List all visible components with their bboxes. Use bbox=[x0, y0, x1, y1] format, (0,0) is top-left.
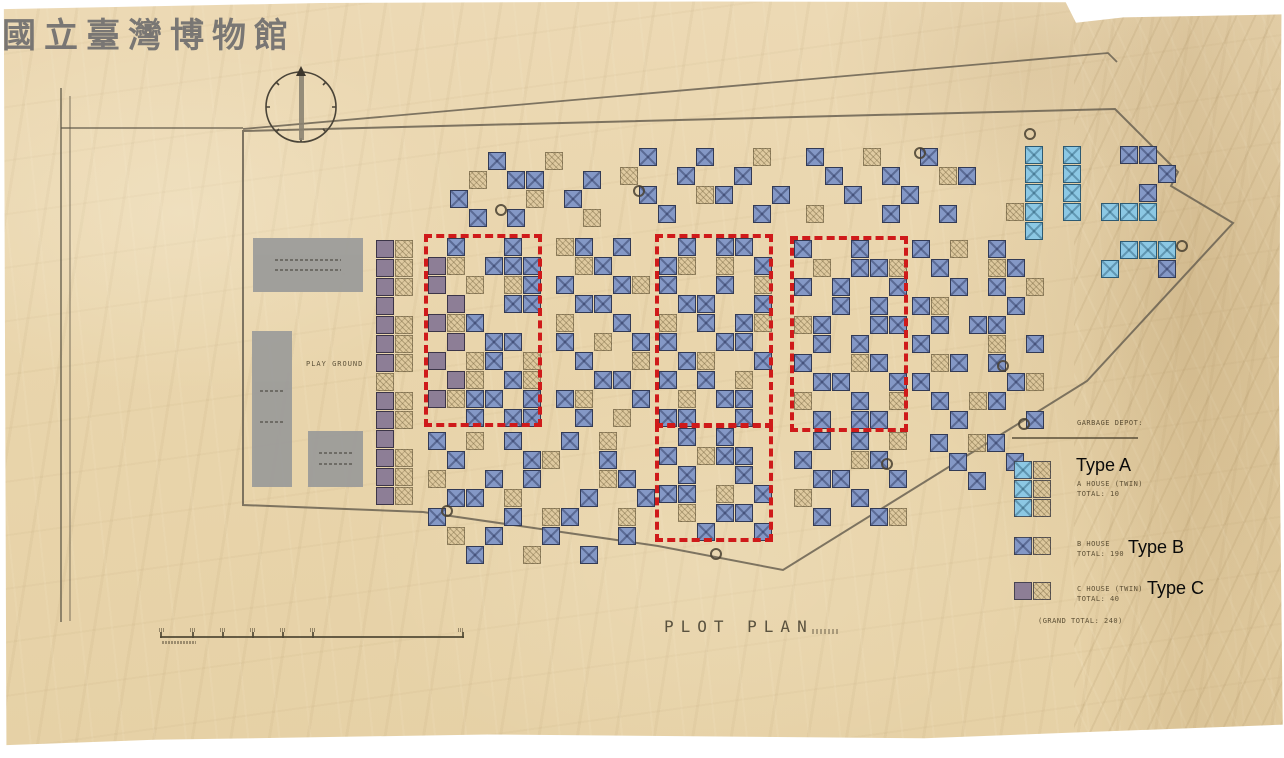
house-cell-type-B bbox=[466, 489, 484, 507]
house-cell-type-B bbox=[523, 451, 541, 469]
highlight-box bbox=[655, 424, 773, 542]
house-cell-type-B bbox=[523, 470, 541, 488]
house-cell-type-B bbox=[613, 238, 631, 256]
house-cell-type-B bbox=[912, 335, 930, 353]
house-cell-type-B bbox=[575, 295, 593, 313]
house-cell-type-B bbox=[485, 527, 503, 545]
vacant-lot-cell bbox=[469, 171, 487, 189]
house-cell-type-C bbox=[376, 278, 394, 296]
highlight-box bbox=[655, 234, 773, 427]
house-cell-type-B bbox=[1026, 335, 1044, 353]
vacant-lot-cell bbox=[395, 411, 413, 429]
house-cell-type-A bbox=[1139, 241, 1157, 259]
house-cell-type-C bbox=[376, 335, 394, 353]
house-cell-type-B bbox=[987, 434, 1005, 452]
house-cell-type-B bbox=[580, 489, 598, 507]
house-cell-type-C bbox=[376, 240, 394, 258]
house-cell-type-B bbox=[851, 432, 869, 450]
house-cell-type-B bbox=[988, 240, 1006, 258]
scanned-plot-plan-document: { "watermark": "國立臺灣博物館", "title": { "te… bbox=[0, 0, 1284, 758]
house-cell-type-B bbox=[450, 190, 468, 208]
vacant-lot-cell bbox=[556, 238, 574, 256]
house-cell-type-B bbox=[813, 470, 831, 488]
vacant-lot-cell bbox=[575, 390, 593, 408]
house-cell-type-A bbox=[1025, 165, 1043, 183]
house-cell-type-C bbox=[376, 411, 394, 429]
vacant-lot-cell bbox=[889, 432, 907, 450]
house-cell-type-B bbox=[466, 546, 484, 564]
house-cell-type-C bbox=[376, 316, 394, 334]
garbage-depot-marker bbox=[633, 185, 645, 197]
house-cell-type-B bbox=[1158, 260, 1176, 278]
vacant-lot-cell bbox=[950, 240, 968, 258]
vacant-lot-cell bbox=[575, 257, 593, 275]
house-cell-type-A bbox=[1025, 184, 1043, 202]
house-cell-type-B bbox=[488, 152, 506, 170]
vacant-lot-cell bbox=[969, 392, 987, 410]
play-ground-label: PLAY GROUND bbox=[306, 360, 363, 368]
vacant-lot-cell bbox=[1006, 203, 1024, 221]
vacant-lot-cell bbox=[599, 432, 617, 450]
vacant-lot-cell bbox=[939, 167, 957, 185]
house-cell-type-A bbox=[1025, 146, 1043, 164]
house-cell-type-B bbox=[618, 470, 636, 488]
vacant-lot-cell bbox=[599, 470, 617, 488]
house-cell-type-B bbox=[469, 209, 487, 227]
house-cell-type-B bbox=[618, 527, 636, 545]
house-cell-type-B bbox=[507, 171, 525, 189]
vacant-lot-cell bbox=[395, 468, 413, 486]
house-cell-type-A bbox=[1101, 203, 1119, 221]
house-cell-type-B bbox=[753, 205, 771, 223]
outer-property-line bbox=[243, 53, 1117, 129]
legend-b-house-label: B HOUSE bbox=[1077, 540, 1110, 548]
house-cell-type-B bbox=[813, 432, 831, 450]
house-cell-type-B bbox=[613, 371, 631, 389]
house-cell-type-B bbox=[939, 205, 957, 223]
public-building bbox=[253, 238, 363, 292]
scale-caption-smudge bbox=[162, 641, 196, 644]
vacant-lot-cell bbox=[968, 434, 986, 452]
house-cell-type-B bbox=[950, 278, 968, 296]
house-cell-type-B bbox=[912, 373, 930, 391]
highlight-box bbox=[424, 234, 542, 427]
plot-plan-title: PLOT PLAN bbox=[664, 617, 814, 636]
house-cell-type-B bbox=[806, 148, 824, 166]
house-cell-type-B bbox=[575, 352, 593, 370]
house-cell-type-B bbox=[950, 354, 968, 372]
vacant-lot-cell bbox=[542, 451, 560, 469]
house-cell-type-C bbox=[376, 430, 394, 448]
house-cell-type-B bbox=[526, 171, 544, 189]
vacant-lot-cell bbox=[504, 489, 522, 507]
scale-bar bbox=[160, 632, 464, 646]
house-cell-type-B bbox=[912, 297, 930, 315]
house-cell-type-B bbox=[580, 546, 598, 564]
house-cell-type-B bbox=[447, 489, 465, 507]
vacant-lot-cell bbox=[632, 352, 650, 370]
vacant-lot-cell bbox=[806, 205, 824, 223]
vacant-lot-cell bbox=[988, 335, 1006, 353]
house-cell-type-B bbox=[599, 451, 617, 469]
garbage-depot-marker bbox=[1024, 128, 1036, 140]
house-cell-type-B bbox=[639, 148, 657, 166]
house-cell-type-B bbox=[594, 295, 612, 313]
house-cell-type-B bbox=[988, 316, 1006, 334]
public-building bbox=[308, 431, 363, 487]
vacant-lot-cell bbox=[466, 432, 484, 450]
vacant-lot-cell bbox=[395, 392, 413, 410]
house-cell-type-B bbox=[988, 278, 1006, 296]
house-cell-type-B bbox=[1139, 146, 1157, 164]
house-cell-type-C bbox=[376, 468, 394, 486]
type-a-overlay-label: Type A bbox=[1076, 455, 1131, 476]
house-cell-type-A bbox=[1025, 203, 1043, 221]
vacant-lot-cell bbox=[428, 470, 446, 488]
house-cell-type-C bbox=[376, 297, 394, 315]
house-cell-type-B bbox=[613, 276, 631, 294]
vacant-lot-cell bbox=[863, 148, 881, 166]
vacant-lot-cell bbox=[447, 527, 465, 545]
legend-garbage-depot-label: GARBAGE DEPOT: bbox=[1077, 419, 1143, 427]
type-c-overlay-label: Type C bbox=[1147, 578, 1204, 599]
house-cell-type-B bbox=[677, 167, 695, 185]
house-cell-type-A bbox=[1063, 203, 1081, 221]
house-cell-type-B bbox=[637, 489, 655, 507]
house-cell-type-B bbox=[485, 470, 503, 488]
house-cell-type-B bbox=[969, 316, 987, 334]
house-cell-type-B bbox=[556, 390, 574, 408]
house-cell-type-B bbox=[507, 209, 525, 227]
house-cell-type-B bbox=[447, 451, 465, 469]
house-cell-type-B bbox=[564, 190, 582, 208]
house-cell-type-B bbox=[504, 508, 522, 526]
legend-a-house-total: TOTAL: 10 bbox=[1077, 490, 1119, 498]
house-cell-type-B bbox=[542, 527, 560, 545]
house-cell-type-B bbox=[658, 205, 676, 223]
compass-icon bbox=[266, 66, 336, 142]
vacant-lot-cell bbox=[851, 451, 869, 469]
vacant-lot-cell bbox=[395, 487, 413, 505]
vacant-lot-cell bbox=[1026, 278, 1044, 296]
vacant-lot-cell bbox=[632, 276, 650, 294]
house-cell-type-B bbox=[575, 238, 593, 256]
vacant-lot-cell bbox=[395, 316, 413, 334]
paper-sheet: PLAY GROUND PLOT PLAN GARBAGE DEPOT: bbox=[0, 0, 1284, 758]
house-cell-type-B bbox=[1158, 165, 1176, 183]
vacant-lot-cell bbox=[889, 508, 907, 526]
house-cell-type-C bbox=[376, 449, 394, 467]
house-cell-type-B bbox=[794, 451, 812, 469]
house-cell-type-B bbox=[958, 167, 976, 185]
house-cell-type-B bbox=[870, 508, 888, 526]
house-cell-type-B bbox=[772, 186, 790, 204]
vacant-lot-cell bbox=[395, 278, 413, 296]
house-cell-type-B bbox=[561, 432, 579, 450]
garbage-depot-marker bbox=[710, 548, 722, 560]
house-cell-type-A bbox=[1120, 241, 1138, 259]
vacant-lot-cell bbox=[395, 449, 413, 467]
legend-c-house-total: TOTAL: 40 bbox=[1077, 595, 1119, 603]
house-cell-type-B bbox=[813, 508, 831, 526]
vacant-lot-cell bbox=[395, 259, 413, 277]
house-cell-type-A bbox=[1063, 184, 1081, 202]
house-cell-type-B bbox=[825, 167, 843, 185]
type-b-overlay-label: Type B bbox=[1128, 537, 1184, 558]
house-cell-type-C bbox=[376, 392, 394, 410]
house-cell-type-B bbox=[1007, 297, 1025, 315]
house-cell-type-B bbox=[1007, 373, 1025, 391]
garbage-depot-marker bbox=[997, 360, 1009, 372]
vacant-lot-cell bbox=[931, 354, 949, 372]
vacant-lot-cell bbox=[931, 297, 949, 315]
vacant-lot-cell bbox=[613, 409, 631, 427]
house-cell-type-A bbox=[1158, 241, 1176, 259]
house-cell-type-B bbox=[594, 257, 612, 275]
vacant-lot-cell bbox=[395, 354, 413, 372]
house-cell-type-B bbox=[851, 489, 869, 507]
vacant-lot-cell bbox=[376, 373, 394, 391]
house-cell-type-B bbox=[912, 240, 930, 258]
house-cell-type-A bbox=[1139, 203, 1157, 221]
vacant-lot-cell bbox=[556, 314, 574, 332]
vacant-lot-cell bbox=[1026, 373, 1044, 391]
house-cell-type-B bbox=[1120, 146, 1138, 164]
house-cell-type-B bbox=[556, 276, 574, 294]
public-building bbox=[252, 331, 292, 487]
house-cell-type-B bbox=[832, 470, 850, 488]
house-cell-type-B bbox=[844, 186, 862, 204]
legend-garbage-depot-icon bbox=[1018, 418, 1030, 430]
house-cell-type-B bbox=[950, 411, 968, 429]
house-cell-type-B bbox=[575, 409, 593, 427]
vacant-lot-cell bbox=[583, 209, 601, 227]
house-cell-type-A bbox=[1063, 146, 1081, 164]
legend-divider bbox=[1012, 437, 1138, 439]
house-cell-type-B bbox=[583, 171, 601, 189]
legend-a-house-label: A HOUSE (TWIN) bbox=[1077, 480, 1143, 488]
house-cell-type-A bbox=[1101, 260, 1119, 278]
vacant-lot-cell bbox=[794, 489, 812, 507]
legend-b-house-total: TOTAL: 190 bbox=[1077, 550, 1124, 558]
garbage-depot-marker bbox=[441, 505, 453, 517]
house-cell-type-B bbox=[1007, 259, 1025, 277]
vacant-lot-cell bbox=[395, 335, 413, 353]
house-cell-type-B bbox=[949, 453, 967, 471]
vacant-lot-cell bbox=[395, 240, 413, 258]
legend-grand-total: (GRAND TOTAL: 240) bbox=[1038, 617, 1123, 625]
house-cell-type-B bbox=[931, 259, 949, 277]
vacant-lot-cell bbox=[523, 546, 541, 564]
museum-watermark: 國立臺灣博物館 bbox=[2, 8, 296, 57]
house-cell-type-B bbox=[882, 167, 900, 185]
house-cell-type-A bbox=[1025, 222, 1043, 240]
vacant-lot-cell bbox=[542, 508, 560, 526]
garbage-depot-marker bbox=[914, 147, 926, 159]
vacant-lot-cell bbox=[618, 508, 636, 526]
vacant-lot-cell bbox=[753, 148, 771, 166]
house-cell-type-B bbox=[632, 333, 650, 351]
vacant-lot-cell bbox=[594, 333, 612, 351]
house-cell-type-B bbox=[504, 432, 522, 450]
garbage-depot-marker bbox=[495, 204, 507, 216]
vacant-lot-cell bbox=[526, 190, 544, 208]
vacant-lot-cell bbox=[620, 167, 638, 185]
house-cell-type-B bbox=[931, 392, 949, 410]
house-cell-type-B bbox=[561, 508, 579, 526]
house-cell-type-B bbox=[1139, 184, 1157, 202]
garbage-depot-marker bbox=[881, 458, 893, 470]
vacant-lot-cell bbox=[696, 186, 714, 204]
house-cell-type-B bbox=[696, 148, 714, 166]
house-cell-type-C bbox=[376, 259, 394, 277]
vacant-lot-cell bbox=[988, 259, 1006, 277]
house-cell-type-B bbox=[632, 390, 650, 408]
plot-plan-scale-smudge bbox=[812, 629, 838, 634]
house-cell-type-B bbox=[901, 186, 919, 204]
house-cell-type-B bbox=[428, 432, 446, 450]
house-cell-type-B bbox=[889, 470, 907, 488]
house-cell-type-A bbox=[1120, 203, 1138, 221]
garbage-depot-marker bbox=[1176, 240, 1188, 252]
house-cell-type-B bbox=[988, 392, 1006, 410]
house-cell-type-B bbox=[968, 472, 986, 490]
legend-c-house-label: C HOUSE (TWIN) bbox=[1077, 585, 1143, 593]
house-cell-type-B bbox=[931, 316, 949, 334]
house-cell-type-B bbox=[734, 167, 752, 185]
house-cell-type-B bbox=[594, 371, 612, 389]
vacant-lot-cell bbox=[545, 152, 563, 170]
house-cell-type-A bbox=[1063, 165, 1081, 183]
house-cell-type-B bbox=[715, 186, 733, 204]
highlight-box bbox=[790, 236, 908, 432]
house-cell-type-B bbox=[930, 434, 948, 452]
house-cell-type-B bbox=[613, 314, 631, 332]
house-cell-type-C bbox=[376, 354, 394, 372]
house-cell-type-C bbox=[376, 487, 394, 505]
house-cell-type-B bbox=[882, 205, 900, 223]
house-cell-type-B bbox=[556, 333, 574, 351]
